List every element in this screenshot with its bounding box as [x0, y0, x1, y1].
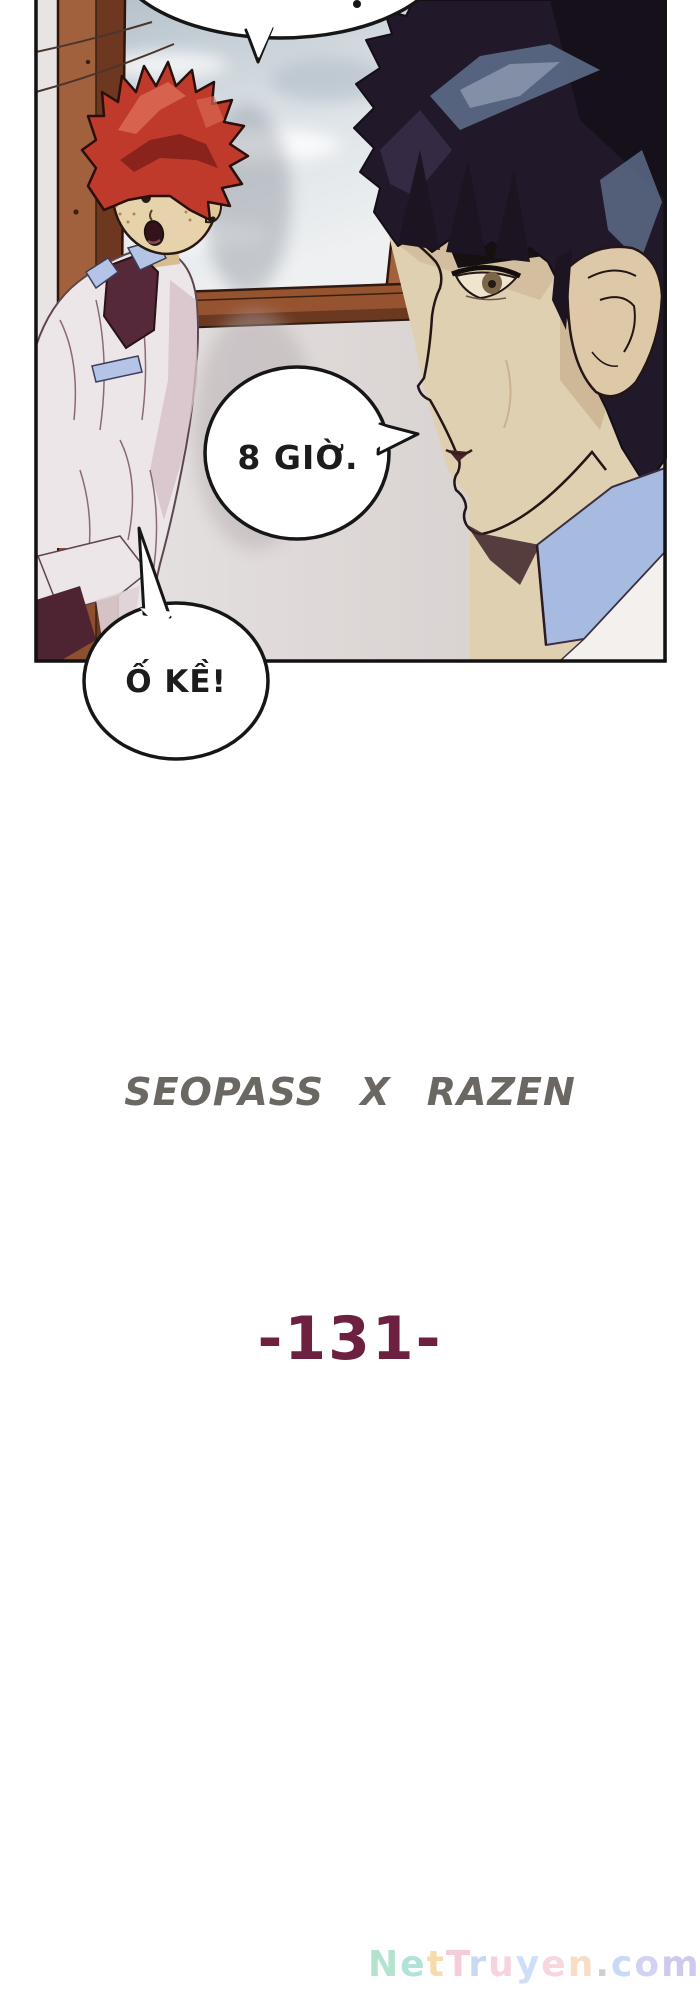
watermark-letter: e	[541, 1944, 567, 1985]
watermark-letter: u	[488, 1944, 516, 1985]
watermark-letter: n	[568, 1944, 596, 1985]
watermark-letter: e	[400, 1944, 426, 1985]
watermark-letter: y	[516, 1944, 541, 1985]
watermark-letter: r	[468, 1944, 488, 1985]
collab-credit: SEOPASS X RAZEN	[0, 1070, 700, 1114]
manga-page: 8 GIỜ. Ố KỀ! SEOPASS X RAZEN -131- NetTr…	[0, 0, 700, 2000]
watermark-letter: t	[427, 1944, 446, 1985]
speech-bubble-bottom-text: Ố KỀ!	[84, 664, 268, 700]
site-watermark: NetTruyen.com	[368, 1944, 700, 1985]
watermark-letter: o	[634, 1944, 661, 1985]
watermark-letter: N	[368, 1944, 400, 1985]
watermark-letter: m	[661, 1944, 700, 1985]
watermark-letter: T	[446, 1944, 469, 1985]
chapter-number: -131-	[0, 1304, 700, 1374]
watermark-letter: .	[595, 1944, 611, 1985]
watermark-letter: c	[611, 1944, 634, 1985]
speech-bubble-mid-text: 8 GIỜ.	[206, 438, 390, 477]
